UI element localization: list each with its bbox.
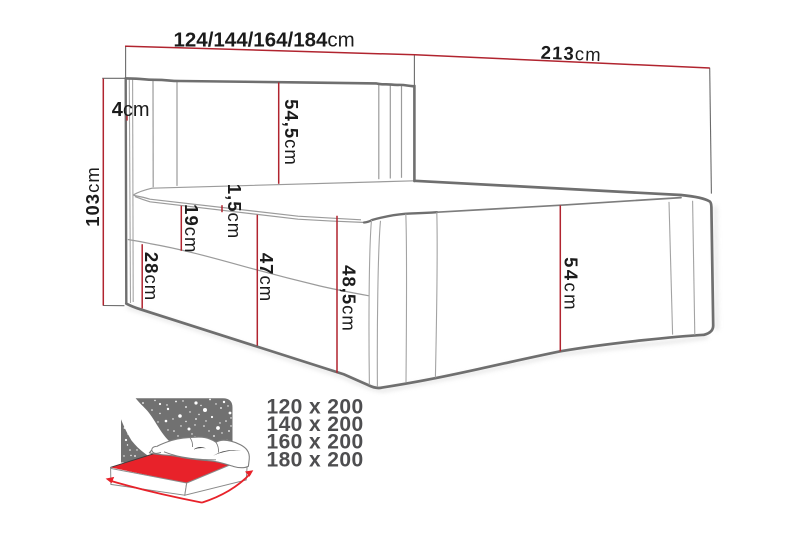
svg-text:48,5cm: 48,5cm: [339, 265, 360, 332]
svg-text:180 x 200: 180 x 200: [267, 449, 364, 472]
svg-text:19cm: 19cm: [181, 204, 202, 253]
svg-text:54cm: 54cm: [561, 257, 582, 312]
svg-text:4cm: 4cm: [112, 99, 150, 121]
svg-text:1,5cm: 1,5cm: [224, 184, 245, 239]
svg-text:124/144/164/184cm: 124/144/164/184cm: [174, 28, 355, 51]
svg-text:28cm: 28cm: [141, 252, 162, 301]
svg-text:54,5cm: 54,5cm: [281, 99, 302, 166]
svg-text:213cm: 213cm: [540, 42, 602, 66]
svg-text:47cm: 47cm: [256, 253, 277, 302]
svg-text:103cm: 103cm: [82, 166, 103, 227]
